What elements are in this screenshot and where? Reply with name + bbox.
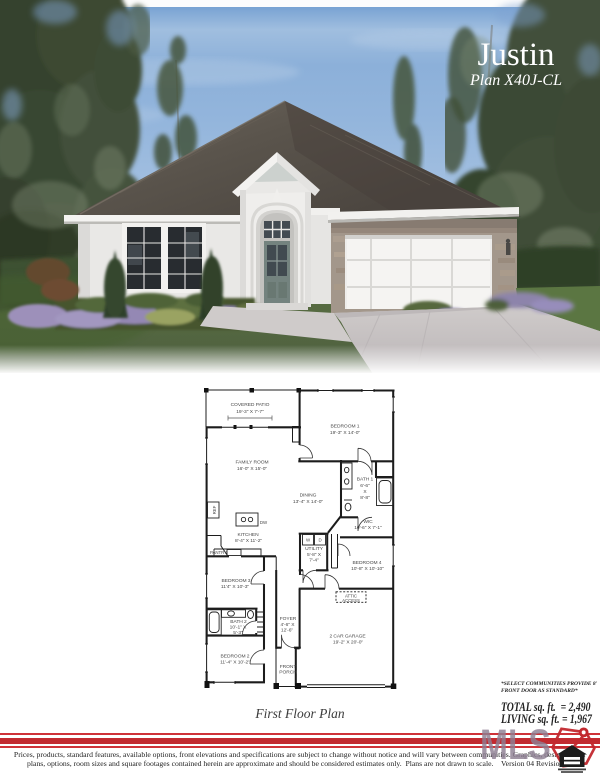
svg-text:12'-6": 12'-6" [281,628,293,634]
svg-text:16'-0" X 15'-0": 16'-0" X 15'-0" [237,466,267,472]
svg-text:BATH 2: BATH 2 [230,619,247,625]
svg-text:FOYER: FOYER [280,616,297,622]
svg-text:BATH 1: BATH 1 [357,477,374,483]
svg-text:ACCESS: ACCESS [342,598,360,603]
svg-text:KITCHEN: KITCHEN [237,532,259,538]
svg-text:UTILITY: UTILITY [305,546,324,552]
svg-text:10'-6" X 7'-1": 10'-6" X 7'-1" [354,525,382,531]
svg-text:4'-6" X: 4'-6" X [280,622,295,628]
svg-text:FRONT: FRONT [280,664,297,670]
svg-text:X: X [363,489,367,495]
svg-text:13'-4" X 14'-0": 13'-4" X 14'-0" [293,499,323,505]
svg-text:DW: DW [260,520,268,525]
svg-text:REF: REF [212,505,217,514]
svg-text:8'-8": 8'-8" [360,495,370,501]
svg-text:COVERED PATIO: COVERED PATIO [231,402,270,408]
svg-text:2 CAR GARAGE: 2 CAR GARAGE [329,634,366,640]
svg-text:BEDROOM 1: BEDROOM 1 [331,424,360,430]
svg-text:8'-4" X 11'-2": 8'-4" X 11'-2" [235,538,262,544]
svg-text:BEDROOM 4: BEDROOM 4 [353,560,382,566]
svg-text:5'-3": 5'-3" [233,630,243,636]
svg-text:19'-3" X 14'-0": 19'-3" X 14'-0" [330,430,360,436]
svg-text:5'-8" X: 5'-8" X [307,552,322,558]
svg-text:11'4" X 10'-3": 11'4" X 10'-3" [221,584,250,590]
svg-text:DINING: DINING [300,493,317,499]
svg-text:PORCH: PORCH [279,670,297,676]
svg-text:PANTRY: PANTRY [210,550,227,555]
svg-text:7'-4": 7'-4" [309,558,319,564]
svg-text:11'-4" X 10'-2": 11'-4" X 10'-2" [220,660,250,666]
svg-text:10'-8" X 10'-10": 10'-8" X 10'-10" [351,566,384,572]
svg-text:WIC: WIC [363,519,373,525]
svg-text:19'-3" X 7'-7": 19'-3" X 7'-7" [236,409,264,415]
svg-text:19'-2" X 20'-0": 19'-2" X 20'-0" [333,640,363,646]
svg-text:BEDROOM 2: BEDROOM 2 [221,654,250,660]
svg-text:BEDROOM 3: BEDROOM 3 [222,578,251,584]
svg-text:W: W [306,538,311,543]
svg-text:D: D [318,538,321,543]
svg-text:6'-6": 6'-6" [360,483,370,489]
svg-text:10'-1" X: 10'-1" X [230,625,247,631]
svg-text:FAMILY ROOM: FAMILY ROOM [236,460,269,466]
